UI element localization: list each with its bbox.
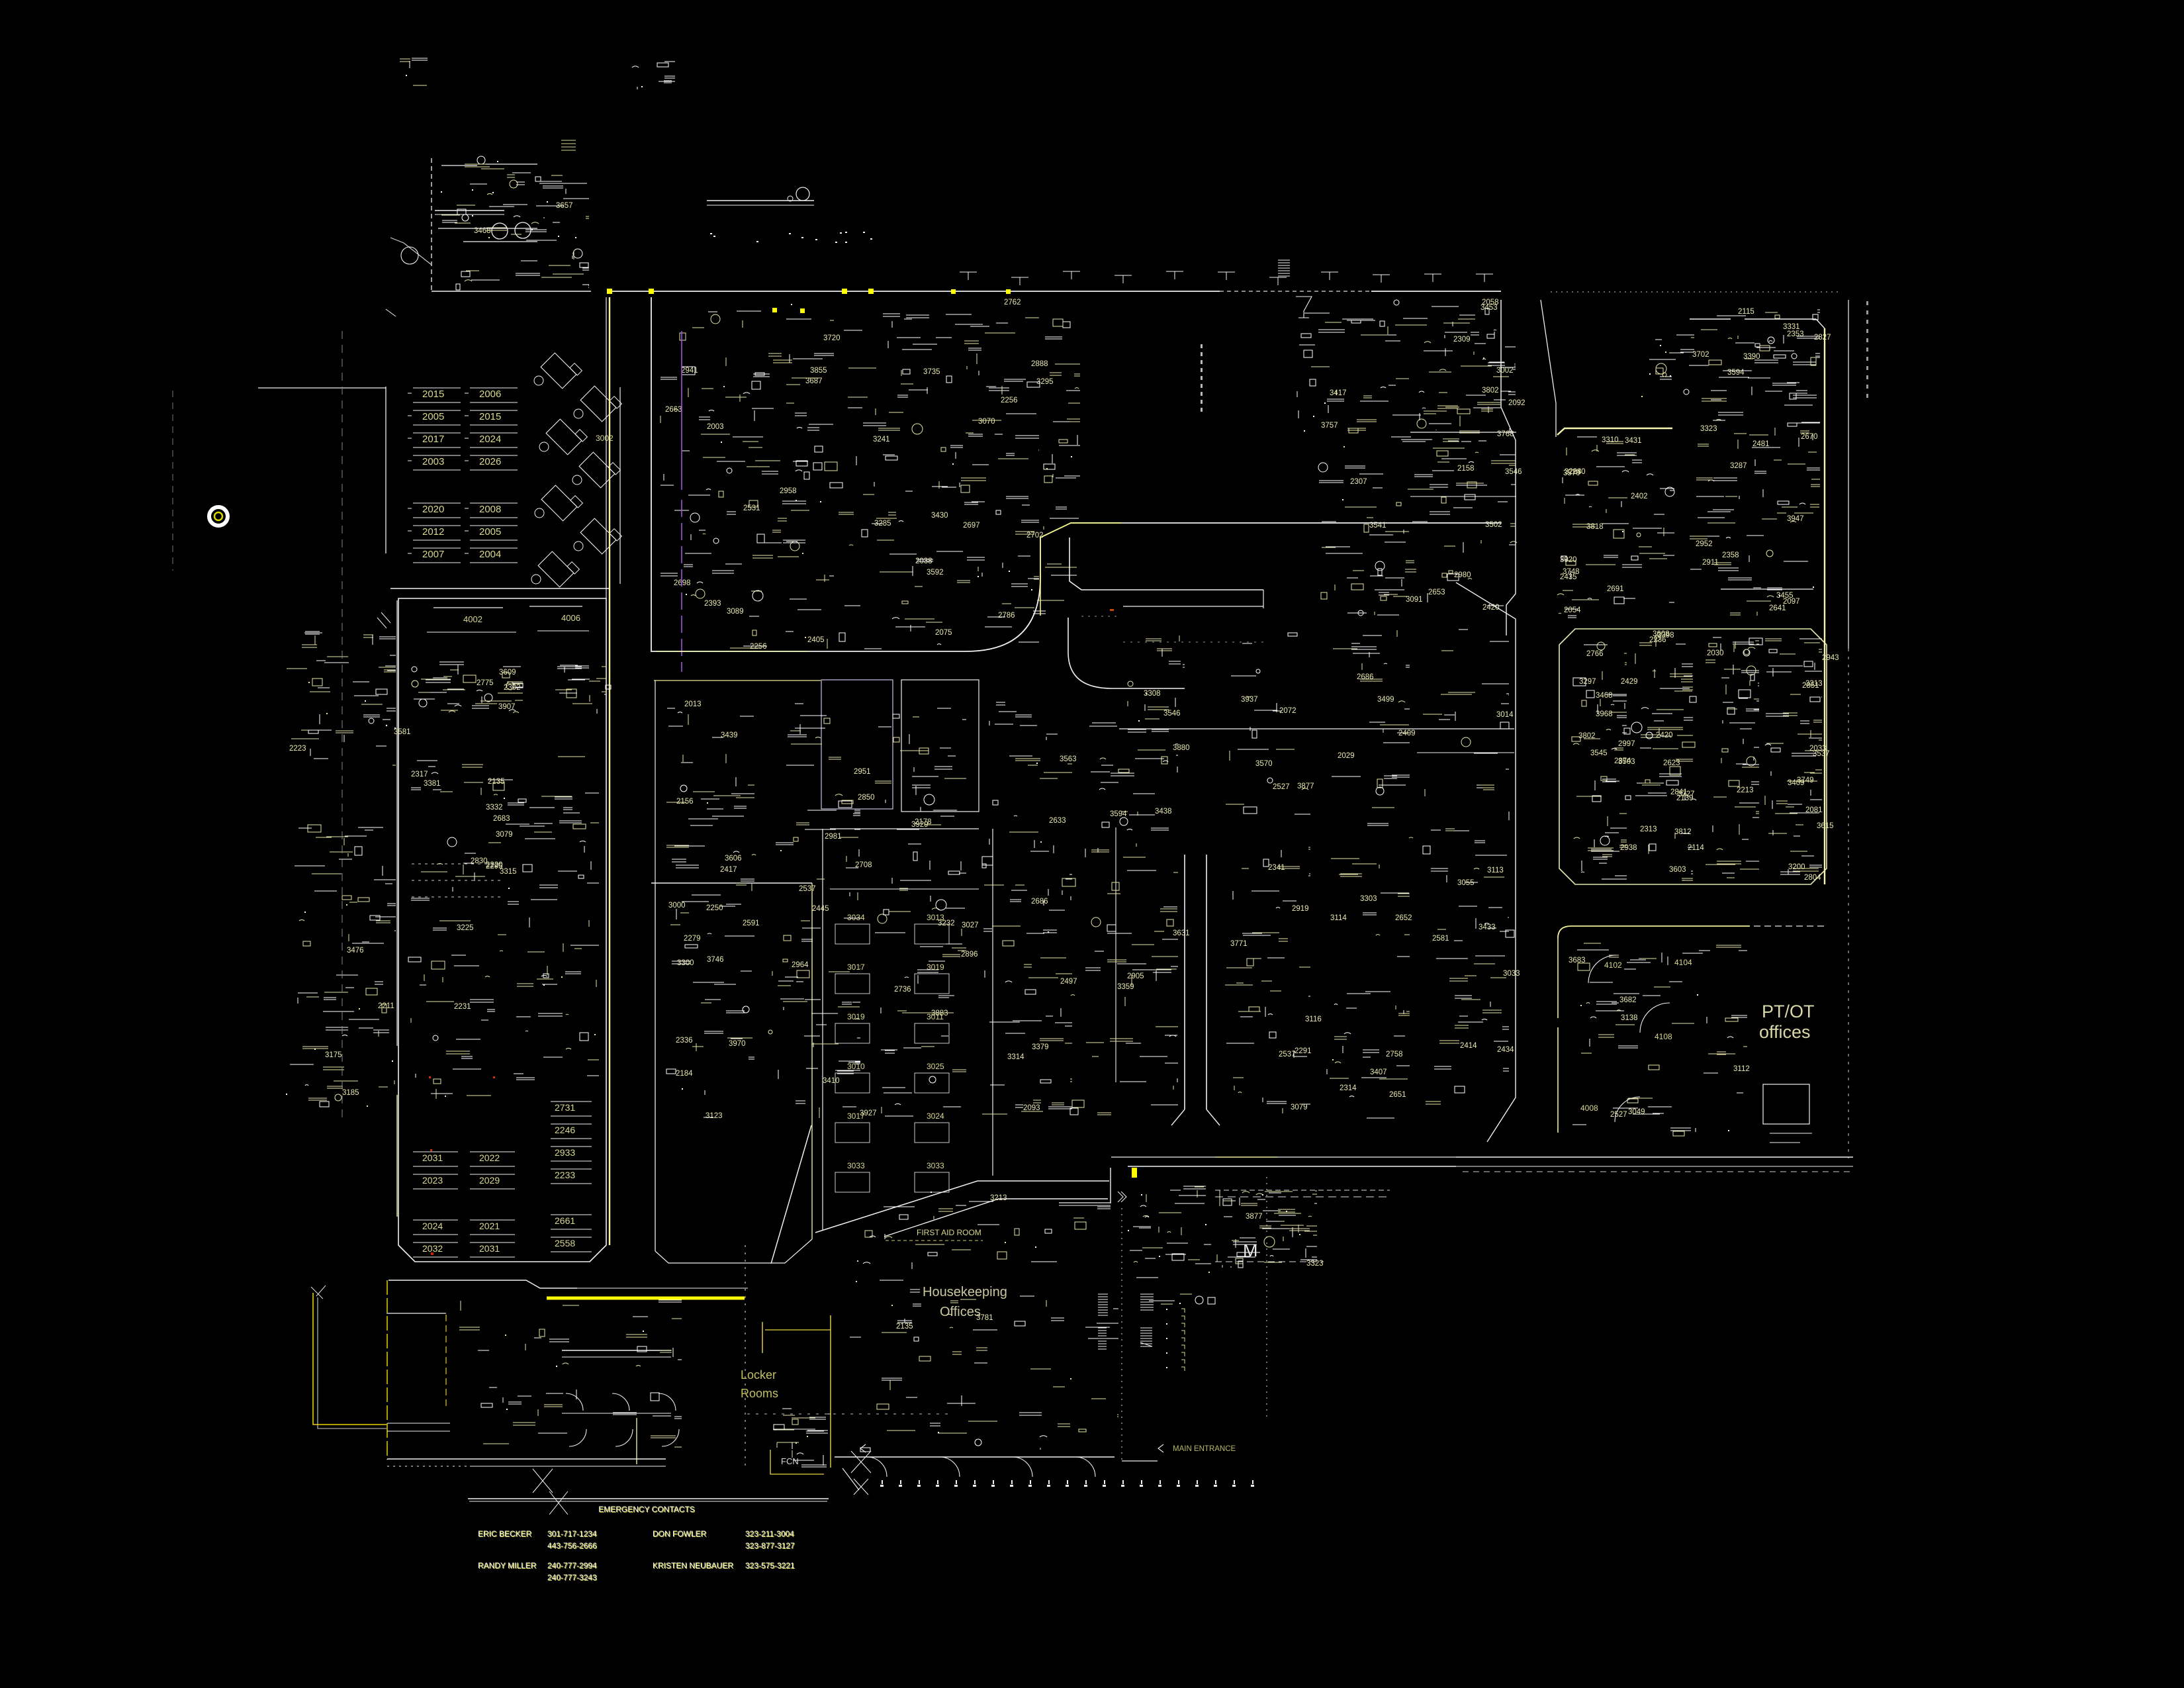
- svg-text:3476: 3476: [347, 947, 364, 955]
- svg-text:3687: 3687: [805, 377, 823, 385]
- svg-text:2964: 2964: [792, 961, 809, 969]
- svg-text:2353: 2353: [1787, 330, 1804, 338]
- svg-text:2686: 2686: [1357, 673, 1374, 681]
- svg-text:3185: 3185: [342, 1089, 359, 1097]
- svg-text:3287: 3287: [1730, 462, 1747, 470]
- svg-text:3112: 3112: [1733, 1065, 1750, 1073]
- svg-text:3748: 3748: [1563, 568, 1580, 576]
- svg-text:2531: 2531: [743, 504, 760, 512]
- svg-text:2021: 2021: [479, 1221, 500, 1231]
- svg-text:3468: 3468: [1596, 692, 1613, 700]
- svg-text:2005: 2005: [479, 526, 501, 538]
- svg-text:2952: 2952: [1696, 540, 1713, 548]
- svg-text:3439: 3439: [721, 731, 738, 739]
- svg-text:2012: 2012: [422, 526, 444, 538]
- svg-text:3089: 3089: [727, 608, 744, 616]
- svg-text:2023: 2023: [422, 1175, 443, 1186]
- svg-text:2651: 2651: [1389, 1091, 1406, 1099]
- svg-text:2623: 2623: [1663, 759, 1680, 767]
- svg-text:3546: 3546: [1163, 710, 1181, 718]
- svg-text:2905: 2905: [1127, 972, 1144, 980]
- svg-text:M: M: [1243, 1241, 1258, 1260]
- svg-text:240-777-2994: 240-777-2994: [547, 1561, 597, 1570]
- svg-text:240-777-3243: 240-777-3243: [547, 1573, 597, 1582]
- svg-text:2029: 2029: [479, 1175, 500, 1186]
- svg-text:2445: 2445: [812, 905, 829, 913]
- svg-text:3033: 3033: [1503, 970, 1520, 978]
- svg-text:3407: 3407: [1370, 1068, 1387, 1076]
- svg-text:2004: 2004: [479, 549, 501, 560]
- svg-text:2527: 2527: [1610, 1111, 1627, 1119]
- svg-text:3113: 3113: [1487, 867, 1504, 874]
- svg-text:3570: 3570: [1563, 469, 1580, 477]
- svg-text:2313: 2313: [1640, 825, 1657, 833]
- svg-text:2015: 2015: [479, 411, 501, 422]
- svg-text:2527: 2527: [1273, 783, 1290, 791]
- svg-text:4102: 4102: [1604, 961, 1622, 970]
- svg-text:2008: 2008: [479, 504, 501, 515]
- svg-text:323-877-3127: 323-877-3127: [745, 1541, 795, 1550]
- svg-text:3683: 3683: [1569, 957, 1586, 964]
- svg-text:3070: 3070: [978, 418, 995, 426]
- svg-text:3592: 3592: [927, 569, 944, 577]
- svg-text:301-717-1234: 301-717-1234: [547, 1529, 597, 1538]
- svg-text:2409: 2409: [1398, 729, 1416, 737]
- svg-text:3232: 3232: [938, 919, 955, 927]
- svg-text:RANDY MILLER: RANDY MILLER: [478, 1561, 537, 1570]
- svg-text:3537: 3537: [1813, 750, 1830, 758]
- svg-text:2537: 2537: [799, 885, 816, 893]
- svg-text:3213: 3213: [990, 1194, 1007, 1202]
- svg-text:3049: 3049: [1628, 1108, 1645, 1116]
- svg-text:3546: 3546: [1505, 468, 1522, 476]
- svg-text:2054: 2054: [1564, 606, 1581, 614]
- svg-text:2686: 2686: [1031, 898, 1048, 906]
- svg-text:3929: 3929: [911, 821, 929, 829]
- svg-text:3746: 3746: [707, 956, 724, 964]
- svg-text:EMERGENCY CONTACTS: EMERGENCY CONTACTS: [598, 1505, 695, 1514]
- svg-text:3002: 3002: [596, 434, 614, 443]
- svg-text:2158: 2158: [1457, 465, 1475, 473]
- svg-text:3563: 3563: [1060, 755, 1077, 763]
- svg-text:3390: 3390: [1743, 353, 1760, 361]
- svg-text:2211: 2211: [378, 1002, 394, 1010]
- svg-text:2652: 2652: [1395, 914, 1412, 922]
- svg-text:2762: 2762: [1004, 299, 1021, 306]
- svg-text:2951: 2951: [854, 768, 871, 776]
- svg-text:3379: 3379: [1032, 1043, 1049, 1051]
- svg-text:3603: 3603: [1669, 866, 1686, 874]
- svg-text:3002: 3002: [1496, 367, 1514, 375]
- svg-text:3200: 3200: [1788, 863, 1805, 871]
- svg-text:2775: 2775: [477, 679, 494, 687]
- svg-text:3025: 3025: [927, 1062, 944, 1071]
- svg-text:3079: 3079: [1291, 1103, 1308, 1111]
- svg-text:2022: 2022: [479, 1152, 500, 1163]
- svg-text:Housekeeping: Housekeeping: [923, 1285, 1007, 1299]
- svg-text:2291: 2291: [1295, 1047, 1312, 1055]
- svg-text:FIRST AID ROOM: FIRST AID ROOM: [917, 1228, 981, 1237]
- svg-text:2031: 2031: [422, 1152, 443, 1163]
- svg-text:2341: 2341: [1268, 864, 1285, 872]
- svg-text:3430: 3430: [931, 512, 948, 520]
- svg-text:2691: 2691: [1607, 585, 1624, 593]
- svg-text:2317: 2317: [411, 771, 428, 778]
- svg-text:323-575-3221: 323-575-3221: [745, 1561, 795, 1570]
- svg-text:DON FOWLER: DON FOWLER: [653, 1529, 707, 1538]
- svg-text:2981: 2981: [825, 833, 842, 841]
- svg-text:3410: 3410: [823, 1077, 840, 1085]
- svg-text:2429: 2429: [1621, 678, 1638, 686]
- svg-text:2633: 2633: [1049, 817, 1066, 825]
- svg-text:2537: 2537: [1279, 1051, 1296, 1058]
- svg-text:2223: 2223: [289, 745, 306, 753]
- svg-text:3303: 3303: [1360, 895, 1377, 903]
- svg-text:323-211-3004: 323-211-3004: [745, 1529, 794, 1538]
- svg-text:443-756-2666: 443-756-2666: [547, 1541, 597, 1550]
- svg-text:2670: 2670: [1801, 433, 1818, 441]
- svg-text:2307: 2307: [1350, 478, 1367, 486]
- svg-text:3019: 3019: [927, 962, 944, 972]
- svg-text:3332: 3332: [486, 804, 503, 812]
- svg-text:2558: 2558: [555, 1238, 575, 1248]
- svg-text:3033: 3033: [927, 1161, 944, 1170]
- svg-text:2393: 2393: [704, 600, 721, 608]
- svg-text:3116: 3116: [1305, 1015, 1322, 1023]
- svg-text:3720: 3720: [823, 334, 841, 342]
- svg-text:3877: 3877: [1246, 1213, 1263, 1221]
- svg-text:3499: 3499: [1377, 696, 1394, 704]
- svg-text:2851: 2851: [1802, 682, 1819, 690]
- svg-text:2938: 2938: [1620, 844, 1637, 852]
- svg-text:2896: 2896: [961, 951, 978, 959]
- svg-text:2943: 2943: [1822, 654, 1839, 662]
- svg-text:2841: 2841: [1670, 788, 1688, 796]
- svg-text:3300: 3300: [677, 959, 694, 967]
- svg-text:ERIC BECKER: ERIC BECKER: [478, 1529, 532, 1538]
- svg-text:2804: 2804: [1804, 874, 1821, 882]
- svg-text:2653: 2653: [1428, 588, 1445, 596]
- svg-text:3735: 3735: [923, 368, 940, 376]
- svg-text:3702: 3702: [1692, 351, 1709, 359]
- svg-text:2246: 2246: [555, 1125, 575, 1135]
- svg-text:3033: 3033: [847, 1161, 865, 1170]
- svg-text:2031: 2031: [479, 1243, 500, 1254]
- svg-text:2958: 2958: [780, 487, 797, 495]
- svg-text:3398: 3398: [1657, 632, 1674, 639]
- svg-text:FCN: FCN: [781, 1456, 799, 1466]
- svg-text:PT/OT: PT/OT: [1762, 1002, 1815, 1021]
- svg-text:2661: 2661: [555, 1215, 575, 1226]
- svg-text:4002: 4002: [463, 614, 482, 624]
- svg-text:2279: 2279: [684, 935, 701, 943]
- svg-text:3010: 3010: [847, 1062, 865, 1071]
- svg-text:3314: 3314: [1007, 1053, 1024, 1061]
- svg-text:3657: 3657: [556, 202, 573, 210]
- svg-text:3417: 3417: [1330, 389, 1347, 397]
- svg-text:2581: 2581: [1432, 935, 1449, 943]
- svg-text:3781: 3781: [976, 1314, 993, 1322]
- svg-text:2683: 2683: [493, 815, 510, 823]
- svg-text:3438: 3438: [1155, 808, 1172, 816]
- svg-text:2663: 2663: [665, 406, 682, 414]
- svg-text:2213: 2213: [1737, 786, 1754, 794]
- svg-text:3241: 3241: [873, 436, 890, 444]
- svg-text:2184: 2184: [676, 1070, 693, 1078]
- svg-text:2231: 2231: [454, 1003, 471, 1011]
- svg-text:3771: 3771: [1230, 940, 1248, 948]
- svg-text:2233: 2233: [555, 1170, 575, 1180]
- svg-text:Offices: Offices: [940, 1305, 981, 1319]
- svg-text:2135: 2135: [896, 1323, 913, 1331]
- svg-text:2156: 2156: [676, 798, 694, 806]
- svg-text:2250: 2250: [706, 904, 723, 912]
- svg-text:3034: 3034: [847, 913, 865, 922]
- svg-text:3877: 3877: [1297, 782, 1314, 790]
- svg-text:2075: 2075: [935, 629, 952, 637]
- svg-text:2731: 2731: [555, 1102, 575, 1113]
- svg-text:Rooms: Rooms: [741, 1387, 778, 1400]
- svg-text:2093: 2093: [1023, 1104, 1040, 1112]
- svg-text:3175: 3175: [325, 1051, 342, 1059]
- svg-text:3802: 3802: [1578, 732, 1596, 740]
- svg-text:3000: 3000: [668, 902, 686, 910]
- svg-text:2115: 2115: [1738, 308, 1754, 316]
- svg-text:3968: 3968: [1596, 710, 1613, 718]
- svg-text:2026: 2026: [479, 456, 501, 467]
- svg-text:2827: 2827: [1814, 334, 1831, 342]
- svg-text:3503: 3503: [1618, 758, 1635, 766]
- svg-text:3818: 3818: [1586, 523, 1604, 531]
- svg-text:3323: 3323: [1700, 425, 1717, 433]
- svg-text:3308: 3308: [1144, 690, 1161, 698]
- svg-text:2005: 2005: [422, 411, 444, 422]
- svg-text:3631: 3631: [1173, 929, 1190, 937]
- svg-text:3017: 3017: [847, 962, 865, 972]
- svg-text:2766: 2766: [1586, 650, 1604, 658]
- svg-text:2092: 2092: [1508, 399, 1525, 407]
- svg-text:2888: 2888: [1031, 360, 1048, 368]
- svg-text:2032: 2032: [422, 1243, 443, 1254]
- svg-text:2003: 2003: [422, 456, 444, 467]
- svg-text:3570: 3570: [1255, 760, 1273, 768]
- svg-text:offices: offices: [1759, 1022, 1811, 1042]
- svg-text:2256: 2256: [750, 643, 767, 651]
- svg-text:3310: 3310: [1602, 436, 1619, 444]
- svg-text:4006: 4006: [561, 613, 580, 623]
- svg-text:2006: 2006: [479, 389, 501, 400]
- svg-text:2919: 2919: [1292, 905, 1309, 913]
- svg-text:3502: 3502: [1485, 521, 1502, 529]
- svg-text:2980: 2980: [1454, 571, 1471, 579]
- svg-text:3880: 3880: [1173, 744, 1190, 752]
- svg-text:3323: 3323: [1306, 1260, 1324, 1268]
- svg-text:2309: 2309: [1453, 336, 1471, 344]
- svg-text:3381: 3381: [424, 780, 441, 788]
- svg-text:2405: 2405: [807, 636, 825, 644]
- svg-text:3883: 3883: [931, 1009, 948, 1017]
- svg-text:4008: 4008: [1580, 1103, 1598, 1113]
- svg-text:2024: 2024: [479, 434, 501, 445]
- svg-text:3682: 3682: [1619, 996, 1637, 1004]
- svg-text:4104: 4104: [1674, 958, 1692, 967]
- svg-text:2786: 2786: [998, 612, 1015, 620]
- svg-text:4108: 4108: [1655, 1032, 1672, 1041]
- svg-text:3907: 3907: [498, 703, 516, 711]
- svg-text:3606: 3606: [725, 855, 742, 863]
- svg-text:Locker: Locker: [741, 1368, 776, 1382]
- svg-text:MAIN ENTRANCE: MAIN ENTRANCE: [1173, 1445, 1236, 1453]
- svg-text:3802: 3802: [1482, 387, 1499, 395]
- svg-text:2013: 2013: [684, 700, 702, 708]
- svg-text:2020: 2020: [422, 504, 444, 515]
- svg-text:2736: 2736: [894, 986, 911, 994]
- svg-text:2256: 2256: [1001, 397, 1018, 404]
- svg-text:2481: 2481: [1752, 440, 1770, 448]
- svg-text:3079: 3079: [496, 831, 513, 839]
- svg-text:3581: 3581: [394, 728, 411, 736]
- svg-text:3027: 3027: [962, 921, 979, 929]
- svg-text:3123: 3123: [705, 1112, 723, 1120]
- svg-text:3014: 3014: [1496, 711, 1514, 719]
- svg-text:2003: 2003: [707, 423, 724, 431]
- svg-text:3749: 3749: [1797, 776, 1814, 784]
- svg-text:3114: 3114: [1330, 914, 1347, 922]
- svg-text:3970: 3970: [729, 1040, 746, 1048]
- svg-text:KRISTEN NEUBAUER: KRISTEN NEUBAUER: [653, 1561, 733, 1570]
- svg-text:3138: 3138: [1621, 1014, 1638, 1022]
- svg-text:3433: 3433: [1479, 923, 1496, 931]
- svg-text:2420: 2420: [1656, 731, 1673, 739]
- svg-text:3855: 3855: [810, 367, 827, 375]
- svg-text:2758: 2758: [1386, 1051, 1403, 1058]
- svg-text:2641: 2641: [1769, 604, 1786, 612]
- svg-text:2015: 2015: [422, 389, 444, 400]
- svg-text:2997: 2997: [1618, 740, 1635, 748]
- svg-text:3615: 3615: [1817, 822, 1834, 830]
- svg-text:2336: 2336: [676, 1037, 693, 1045]
- svg-text:2933: 2933: [555, 1147, 575, 1158]
- svg-text:2029: 2029: [1338, 752, 1355, 760]
- svg-text:3091: 3091: [1406, 596, 1423, 604]
- svg-text:2417: 2417: [720, 866, 737, 874]
- svg-text:2030: 2030: [1707, 649, 1724, 657]
- svg-text:2497: 2497: [1060, 978, 1077, 986]
- svg-text:3594: 3594: [1110, 810, 1127, 818]
- svg-text:3225: 3225: [457, 924, 474, 932]
- svg-text:2314: 2314: [1340, 1084, 1357, 1092]
- svg-text:3812: 3812: [1674, 828, 1692, 836]
- svg-text:3024: 3024: [927, 1111, 944, 1121]
- svg-text:2358: 2358: [1722, 551, 1739, 559]
- svg-text:3431: 3431: [1625, 437, 1642, 445]
- svg-text:2017: 2017: [422, 434, 444, 445]
- svg-text:2007: 2007: [422, 549, 444, 560]
- svg-text:2402: 2402: [1631, 492, 1648, 500]
- svg-text:2114: 2114: [1688, 844, 1704, 852]
- svg-text:3757: 3757: [1321, 422, 1338, 430]
- svg-text:3297: 3297: [1579, 678, 1596, 686]
- svg-text:2414: 2414: [1460, 1042, 1477, 1050]
- svg-text:3594: 3594: [1727, 369, 1745, 377]
- svg-text:3019: 3019: [847, 1012, 865, 1021]
- svg-text:2697: 2697: [963, 522, 980, 530]
- svg-text:2434: 2434: [1497, 1046, 1514, 1054]
- svg-text:2850: 2850: [858, 794, 875, 802]
- svg-text:2024: 2024: [422, 1221, 443, 1231]
- svg-text:3545: 3545: [1590, 749, 1608, 757]
- svg-text:2591: 2591: [743, 919, 760, 927]
- svg-text:2941: 2941: [681, 367, 698, 375]
- svg-text:2135: 2135: [488, 778, 505, 786]
- svg-text:3927: 3927: [860, 1109, 877, 1117]
- svg-text:3055: 3055: [1457, 879, 1475, 887]
